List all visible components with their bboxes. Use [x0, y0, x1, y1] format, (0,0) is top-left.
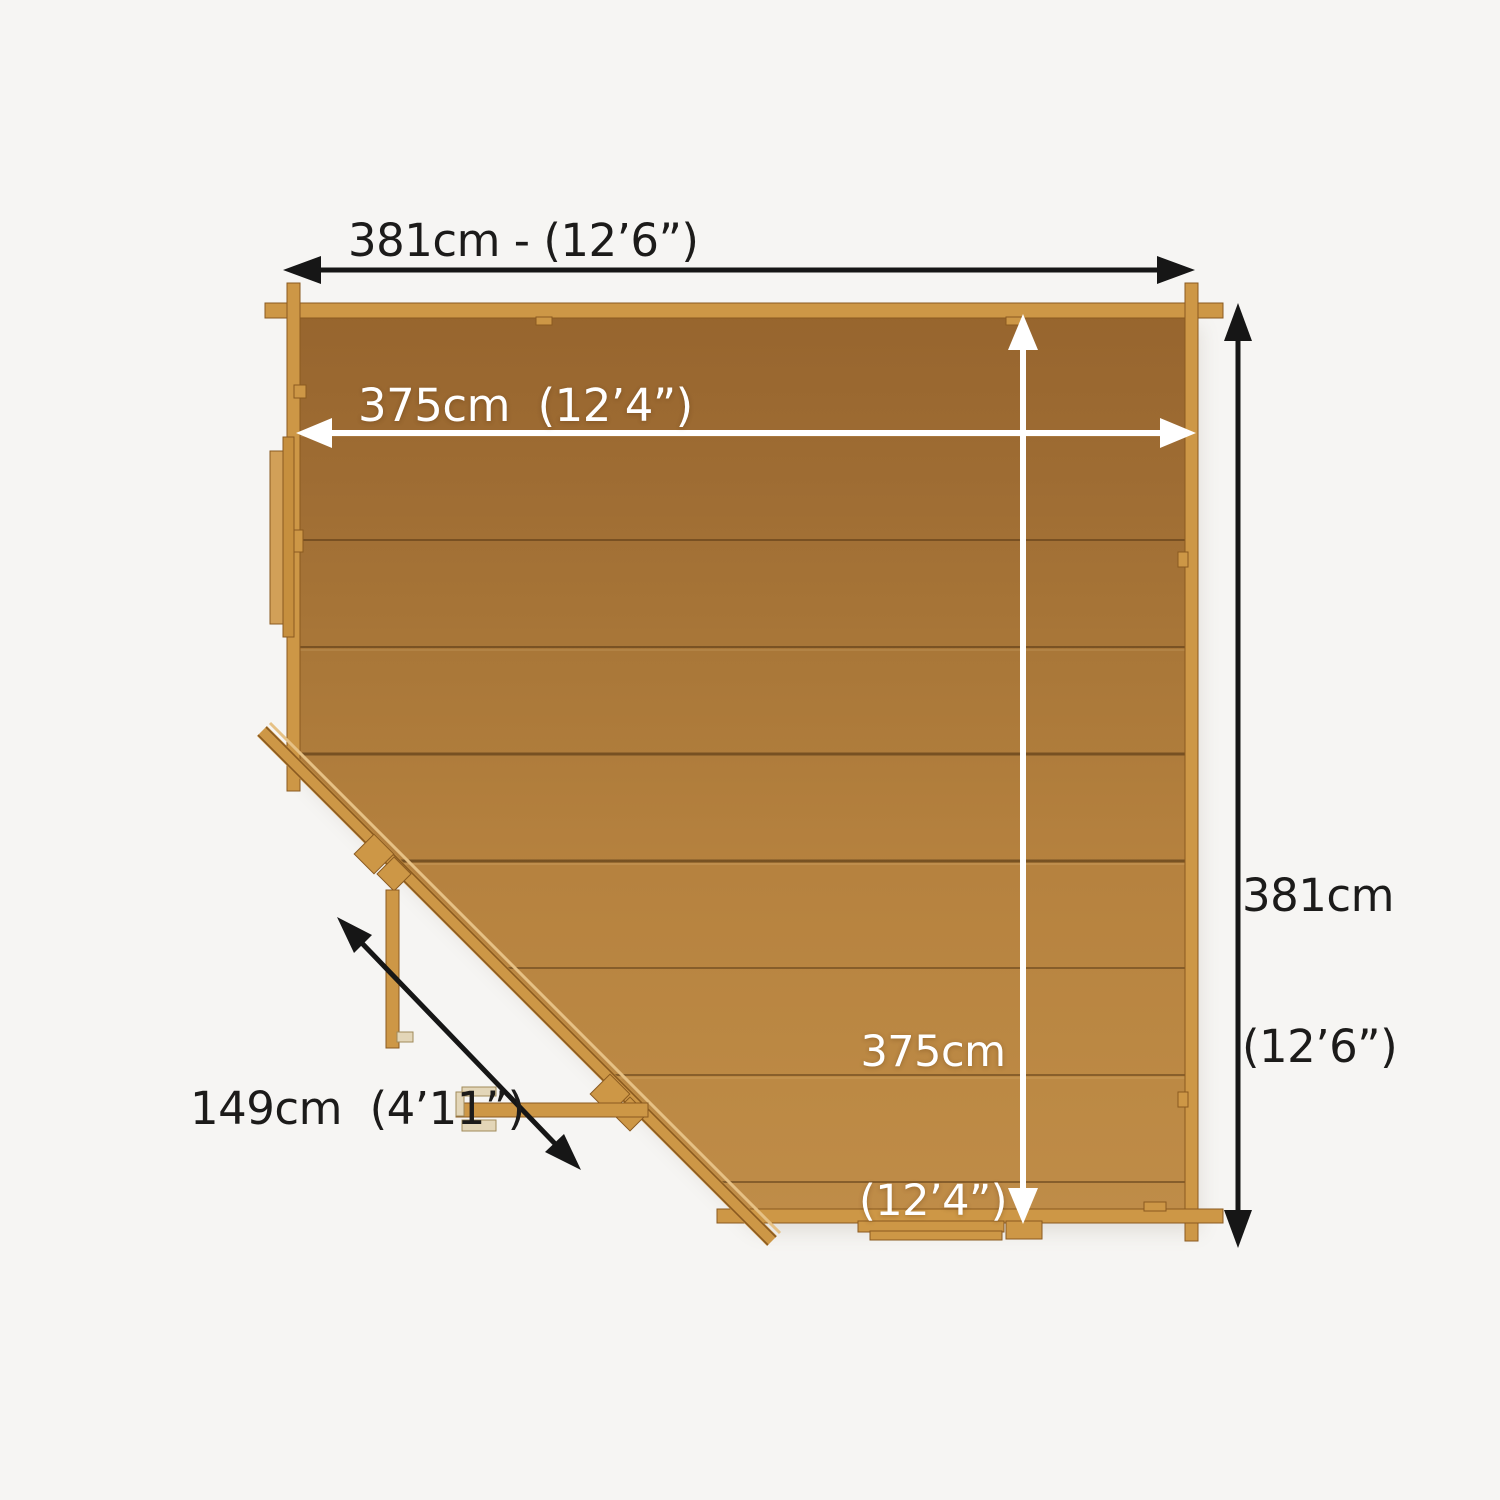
wall-notch	[536, 317, 552, 325]
top-width-label: 381cm - (12’6”)	[348, 216, 698, 266]
right-height-value: 381cm	[1242, 871, 1397, 921]
side-window	[270, 437, 294, 637]
wall-notch	[294, 530, 303, 552]
door-handle-icon	[397, 1032, 413, 1042]
wall-notch	[1144, 1202, 1166, 1211]
wall-top-beam	[265, 303, 1223, 318]
door-width-label: 149cm (4’11”)	[190, 1084, 525, 1134]
wall-notch	[1178, 552, 1188, 567]
inner-height-imperial: (12’4”)	[848, 1177, 1018, 1227]
floor-plan-image: 381cm - (12’6”) 375cm (12’4”) 381cm (12’…	[0, 0, 1500, 1500]
right-height-imperial: (12’6”)	[1242, 1022, 1397, 1072]
inner-height-value: 375cm	[848, 1028, 1018, 1078]
cabin-floor	[296, 310, 1192, 1216]
inner-width-label: 375cm (12’4”)	[358, 381, 693, 431]
floor-plan-graphic	[0, 0, 1500, 1500]
right-height-label: 381cm (12’6”)	[1242, 770, 1397, 1173]
wall-notch	[294, 385, 306, 398]
inner-height-label: 375cm (12’4”)	[848, 928, 1018, 1327]
wall-notch	[1178, 1092, 1188, 1107]
